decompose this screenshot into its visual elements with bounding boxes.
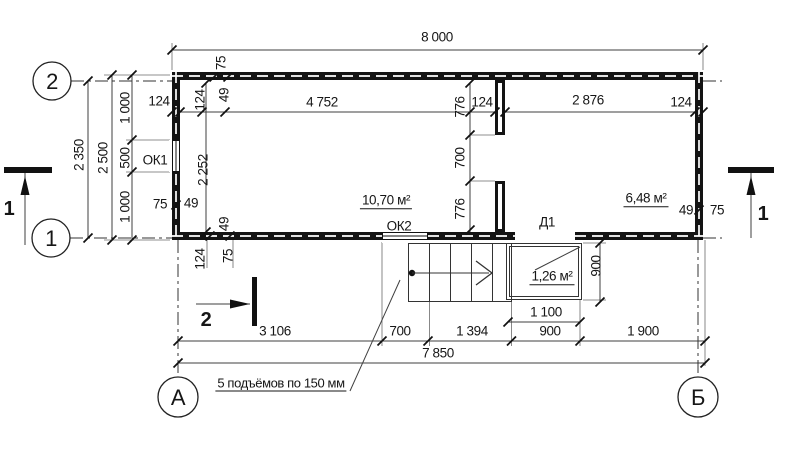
label-porch-area: 1,26 м² xyxy=(529,269,574,285)
section-1-left-arrow xyxy=(21,176,30,195)
dim-partition-124: 124 xyxy=(471,95,492,109)
axis-label-2: 2 xyxy=(46,71,58,93)
section-2-arrow xyxy=(230,300,250,309)
dim-porch-1100: 1 100 xyxy=(530,305,562,319)
dim-top-49: 49 xyxy=(217,88,231,102)
axis-label-1: 1 xyxy=(45,228,57,250)
section-2-bar xyxy=(252,277,257,326)
dim-room1-width: 4 752 xyxy=(306,95,338,109)
dim-bl-49-vert: 49 xyxy=(217,217,231,231)
label-room2-area: 6,48 м² xyxy=(623,191,668,207)
label-room1-area: 10,70 м² xyxy=(360,193,412,209)
dim-bottom-700: 700 xyxy=(389,324,410,338)
section-1-left-label: 1 xyxy=(4,199,15,219)
section-2-label: 2 xyxy=(201,310,212,330)
dim-partition-776-bottom: 776 xyxy=(453,198,467,219)
stair-note: 5 подъёмов по 150 мм xyxy=(215,377,346,392)
dim-left-2350: 2 350 xyxy=(72,139,86,171)
dim-bottom-1394: 1 394 xyxy=(456,324,488,338)
dim-top-overall: 8 000 xyxy=(421,30,453,44)
dim-bottom-900: 900 xyxy=(539,324,560,338)
section-1-right-label: 1 xyxy=(758,204,769,224)
dim-bottom-3106: 3 106 xyxy=(259,324,291,338)
section-1-right-bar xyxy=(728,167,774,173)
dim-partition-776-top: 776 xyxy=(453,96,467,117)
dim-partition-700: 700 xyxy=(453,147,467,168)
axis-label-a: А xyxy=(171,387,185,409)
dim-top-124: 124 xyxy=(193,89,207,110)
dim-br-49: 49 xyxy=(679,203,693,217)
label-window-ok1: ОК1 xyxy=(143,153,168,167)
walls xyxy=(172,72,703,240)
dim-top-75: 75 xyxy=(214,56,228,70)
porch-area-leader xyxy=(535,247,580,270)
dim-porch-900: 900 xyxy=(589,255,603,276)
dim-bl-75-vert: 75 xyxy=(221,249,235,263)
label-window-ok2: ОК2 xyxy=(387,219,412,233)
dim-wall-124-right: 124 xyxy=(670,95,691,109)
dim-bl-49: 49 xyxy=(184,196,198,210)
label-door-d1: Д1 xyxy=(539,215,555,229)
section-1-left-bar xyxy=(4,167,52,173)
dim-room2-width: 2 876 xyxy=(572,93,604,107)
dim-left-2500: 2 500 xyxy=(96,142,110,174)
dim-bottom-1900: 1 900 xyxy=(627,324,659,338)
dim-br-75: 75 xyxy=(710,203,724,217)
section-1-right-arrow xyxy=(747,176,756,195)
dim-bl-124-vert: 124 xyxy=(193,248,207,269)
staircase xyxy=(409,244,512,302)
dim-left-1000-top: 1 000 xyxy=(118,92,132,124)
dim-wall-124-left: 124 xyxy=(148,94,169,108)
dim-left-1000-bottom: 1 000 xyxy=(118,191,132,223)
axis-label-b: Б xyxy=(691,387,705,409)
dim-left-500: 500 xyxy=(118,147,132,168)
dim-bl-75: 75 xyxy=(153,197,167,211)
floor-plan-drawing: 8 000 124 4 752 124 2 876 124 2 350 2 50… xyxy=(0,0,800,452)
dim-inner-2252: 2 252 xyxy=(196,154,210,186)
dim-bottom-7850: 7 850 xyxy=(422,346,454,360)
